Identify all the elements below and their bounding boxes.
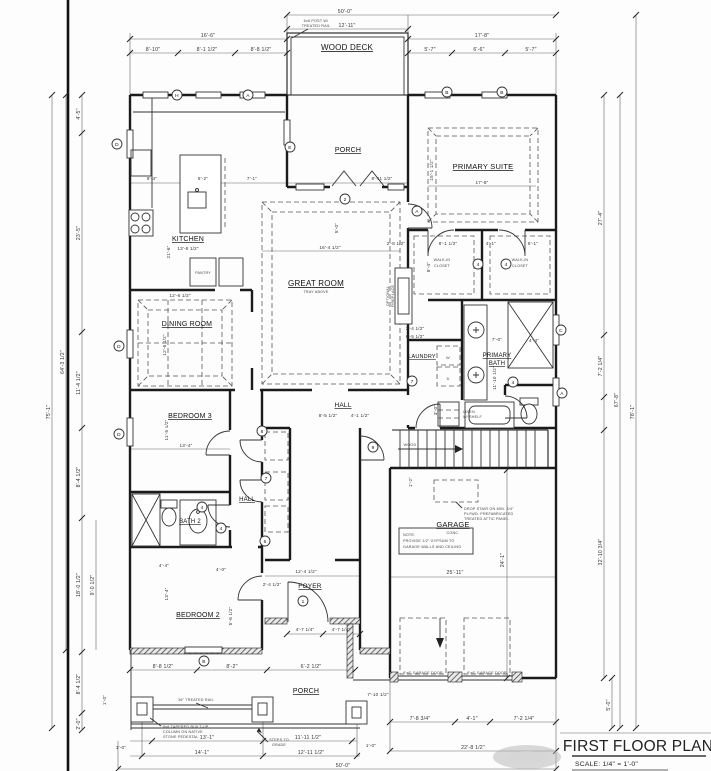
drawing-scale: SCALE: 1/4" = 1'-0" <box>575 761 638 768</box>
dim: 75'-1" <box>46 405 52 419</box>
dim: 8'-5 1/2" <box>319 413 338 418</box>
room-label-wic1-1: WALK-IN <box>434 258 451 262</box>
title-block: FIRST FLOOR PLAN SCALE: 1/4" = 1'-0" <box>563 738 711 770</box>
note-garage-door-1: 9'x8' GARAGE DOOR <box>403 671 443 675</box>
note-deck-rail-1: 6x6 POST W/ <box>304 19 329 23</box>
dim: 8'-10" <box>146 47 160 53</box>
dim: 12'-4 1/2" <box>295 569 317 574</box>
dim: 8'-8 1/2" <box>251 47 272 53</box>
door-tag: 4 <box>477 262 480 268</box>
room-label-fireplace-1: OPTIONAL <box>386 286 390 306</box>
dim: 13'-8 1/2" <box>177 246 199 251</box>
note-garage-2: GARAGE WALLS AND CEILING <box>403 545 461 549</box>
stair-material-label: WOOD <box>404 443 417 447</box>
door-tag: 7 <box>265 476 268 482</box>
door-tag: 4 <box>505 262 508 268</box>
dim: 8'-1" <box>528 241 538 246</box>
room-label-pantry: PANTRY <box>195 271 211 275</box>
dim: 8'-2" <box>198 176 208 181</box>
dim: 27'-4" <box>598 211 604 225</box>
note-attic-1: DROP STAIR ON MIN. 3/4" <box>464 507 514 511</box>
room-label-foyer: FOYER <box>298 583 321 590</box>
dim: 1'-2" <box>408 477 413 487</box>
dim: 4'-4" <box>159 563 169 568</box>
note-garage-door-2: 9'x8' GARAGE DOOR <box>467 671 507 675</box>
dim: 14'-1" <box>195 750 209 756</box>
room-label-great-room: GREAT ROOM <box>288 279 344 288</box>
room-label-primary-suite: PRIMARY SUITE <box>453 162 514 171</box>
room-label-primary-bath-1: PRIMARY <box>483 353 512 359</box>
room-label-hall-upper: HALL <box>334 402 351 409</box>
dim: 25'-11" <box>446 570 463 576</box>
note-column-1: 8x8 TAPERED BUILT-UP <box>163 725 209 729</box>
dim: 12'-11" <box>338 23 355 29</box>
dim: 8'-4" <box>426 262 431 272</box>
dim: 13'-4" <box>180 443 193 448</box>
dim: 11'-10 1/2" <box>492 366 497 390</box>
dim: 1'-0" <box>366 743 376 748</box>
room-sublabel-great-room: TRAY ABOVE <box>303 290 328 294</box>
dim: 5'-6 1/2" <box>228 607 233 626</box>
dim: 8'-1 1/2" <box>197 47 218 53</box>
note-deck-rail-2: TREATED RAIL <box>302 24 331 28</box>
dims-left: 75'-1" 64'-3 1/2" 4'-5" 23'-5" 11'-4 1/2… <box>46 108 107 729</box>
dim: 5'-0" <box>334 223 339 233</box>
dim: 11'-11 1/2" <box>295 735 321 741</box>
window-tag: E <box>288 145 291 151</box>
window-tag: B <box>445 90 448 96</box>
room-label-wic2-2: CLOSET <box>512 264 529 268</box>
note-column-3: STONE PEDESTAL <box>163 735 198 739</box>
dryer-label: D <box>447 377 450 381</box>
dim: 7'-2 1/4" <box>598 356 604 377</box>
dim: 5'-0" <box>606 699 612 710</box>
dim: 7'-1" <box>247 176 257 181</box>
dim: 78'-1" <box>630 405 636 419</box>
dim: 7'-0" <box>492 337 502 342</box>
room-label-bedroom2: BEDROOM 2 <box>176 612 220 619</box>
dim: 15'-1 1/2" <box>429 159 434 181</box>
dim: 8'-4 1/2" <box>76 467 82 488</box>
dim: 13'-1" <box>200 735 214 741</box>
dim: 8'-2" <box>226 664 237 670</box>
dim: 22'-8 1/2" <box>461 745 485 751</box>
note-garage-title: NOTE: <box>403 533 415 537</box>
dim: 12'-11 1/2" <box>298 750 325 756</box>
room-label-porch-bottom: PORCH <box>293 688 319 695</box>
dim: 24'-1" <box>500 553 506 567</box>
room-label-fireplace-2: FIREPLACE <box>391 285 395 308</box>
note-porch-rail: 36" TREATED RAIL <box>178 698 214 702</box>
room-label-primary-bath-2: BATH <box>489 361 505 367</box>
door-tag: 4 <box>201 505 204 511</box>
stairs: WOOD <box>392 430 548 468</box>
dim: 8'-4" <box>147 176 157 181</box>
floor-plan-sheet: WOOD W D <box>0 0 711 771</box>
door-tag: 6 <box>264 539 267 545</box>
door-tag: 4 <box>512 380 515 386</box>
room-label-bedroom3: BEDROOM 3 <box>168 413 212 420</box>
dim: 7'-2 1/4" <box>514 716 535 722</box>
dim: 2'-8 1/2" <box>387 241 406 246</box>
dim: 18'-0 1/2" <box>76 573 82 597</box>
dim: 17'-8" <box>476 180 489 185</box>
room-label-bath2: BATH 2 <box>179 519 201 525</box>
room-label-porch-top: PORCH <box>335 147 361 154</box>
window-tag: A <box>246 93 250 99</box>
note-garage-1: PROVIDE 1/2" GYPSUM TO <box>403 539 454 543</box>
door-tag: 7 <box>411 379 414 385</box>
dim: 8'-11 1/2" <box>371 176 392 181</box>
dim: 4'-0" <box>216 567 226 572</box>
note-attic-2: PLYWD. PREFABRICATED <box>464 512 513 516</box>
dim: 6'-5 1/2" <box>406 334 425 339</box>
room-label-linen-1: LINEN <box>463 410 475 414</box>
dim: 1'-0" <box>102 695 107 705</box>
dim: 4'-4" <box>529 338 539 343</box>
dim: 17'-8" <box>475 33 489 39</box>
dims-right: 27'-4" 7'-2 1/4" 32'-10 3/4" 67'-8" 78'-… <box>500 211 636 711</box>
room-label-kitchen: KITCHEN <box>172 236 204 243</box>
window-tag: B <box>500 90 503 96</box>
dim: 9'-0 1/2" <box>90 575 96 596</box>
door-tag: 9 <box>372 445 375 451</box>
dim: 4'-5" <box>76 108 82 119</box>
window-tag: H <box>175 93 179 99</box>
dim: 12'-6 1/2" <box>162 334 167 356</box>
dim: 16'-6" <box>201 33 215 39</box>
dim: 50'-0" <box>336 763 350 769</box>
dim: 4'-7 1/4" <box>332 627 351 632</box>
dim: 6'-2 1/2" <box>301 664 322 670</box>
washer-label: W <box>446 356 450 360</box>
room-label-linen-2: W/ SHELF <box>463 415 483 419</box>
dim: 2'-0" <box>76 718 82 729</box>
window-tag: A <box>560 391 564 397</box>
note-attic-3: TREATED ATTIC PANEL <box>464 517 509 521</box>
window-tag: C <box>559 328 563 334</box>
dim: 2'-4 1/2" <box>263 582 282 587</box>
room-label-wic2-1: WALK-IN <box>512 258 529 262</box>
dim: 23'-5" <box>76 226 82 240</box>
dim: 2'-4 1/2" <box>406 326 425 331</box>
dim: 8'-1 1/2" <box>439 241 458 246</box>
dim: 21'-6" <box>166 245 171 258</box>
dim: 1'-0" <box>116 745 126 750</box>
dim: 50'-0" <box>338 9 352 15</box>
window-tag: D <box>117 344 121 350</box>
deck-and-porches <box>131 33 408 730</box>
dim: 4'-1" <box>466 716 477 722</box>
dim: 3'-0" <box>433 405 438 415</box>
window-tag: A <box>415 209 419 215</box>
dim: 5'-7" <box>424 47 435 53</box>
dim: 4'-7 1/4" <box>296 627 315 632</box>
dim: 5'-7" <box>525 47 536 53</box>
window-tag: D <box>115 142 119 148</box>
door-tag: 1 <box>302 599 305 605</box>
note-steps-1: STEPS TO <box>269 738 289 742</box>
dim: 12'-6 1/2" <box>169 293 191 298</box>
room-label-dining: DINING ROOM <box>162 321 212 328</box>
dim: 4'-1" <box>486 241 496 246</box>
floor-plan-canvas: WOOD W D <box>0 0 711 771</box>
dim: 7'-10 1/2" <box>367 692 389 697</box>
dim: 6'-6" <box>473 47 484 53</box>
window-tag: D <box>117 432 121 438</box>
door-tag: 2 <box>344 197 347 203</box>
photo-watermark <box>493 745 561 769</box>
drawing-title: FIRST FLOOR PLAN <box>563 738 711 755</box>
door-tag: 8 <box>261 429 264 435</box>
dim: 7'-8 3/4" <box>410 716 431 722</box>
dim: 16'-4 1/2" <box>319 245 341 250</box>
dimension-lines <box>49 12 711 771</box>
dim: 32'-10 3/4" <box>598 539 604 566</box>
room-label-wood-deck: WOOD DECK <box>321 43 373 52</box>
room-sublabel-garage: CONC. <box>447 531 460 535</box>
dim: 13'-4" <box>164 587 169 600</box>
plan-notes: 6x6 POST W/ TREATED RAIL 36" TREATED RAI… <box>150 19 514 747</box>
dim: 4'-1 1/2" <box>351 413 370 418</box>
door-tag: 4 <box>220 526 223 532</box>
dim: 11'-4 1/2" <box>76 371 82 394</box>
room-label-laundry: LAUNDRY <box>408 354 436 360</box>
dim: 67'-8" <box>614 393 620 407</box>
room-label-garage: GARAGE <box>436 520 469 529</box>
room-label-wic1-2: CLOSET <box>434 264 451 268</box>
dim: 8'-8 1/2" <box>153 664 174 670</box>
dim: 11'-5 1/2" <box>164 419 169 440</box>
window-tag: B <box>202 659 205 665</box>
room-label-hall-lower: HALL <box>239 497 255 503</box>
dim: 8'-4 1/2" <box>76 674 82 695</box>
note-steps-2: GRADE <box>272 743 286 747</box>
note-column-2: COLUMN ON NATIVE <box>163 730 203 734</box>
dim: 64'-3 1/2" <box>60 350 66 374</box>
